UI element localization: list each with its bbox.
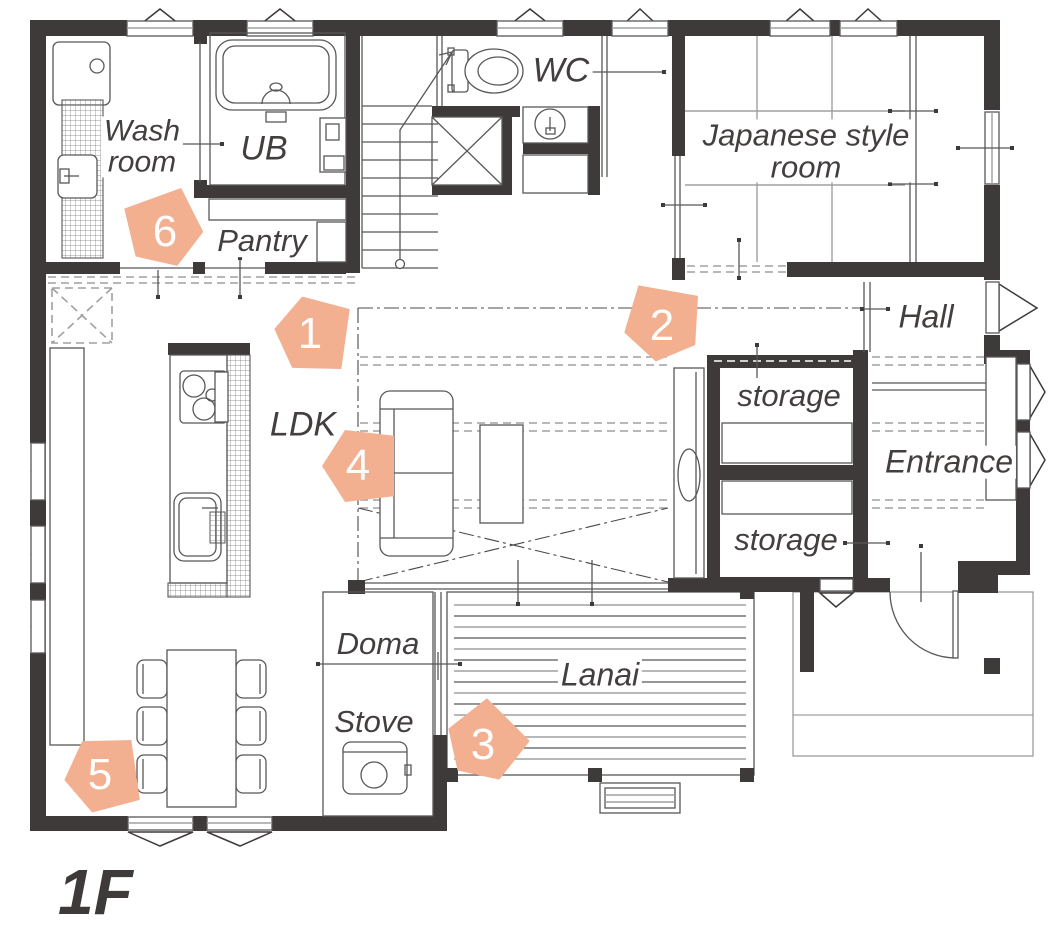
washing-machine bbox=[53, 42, 110, 105]
marker-2-number: 2 bbox=[626, 290, 698, 362]
marker-1: 1 bbox=[274, 298, 346, 370]
marker-4: 4 bbox=[322, 430, 394, 502]
deck-step bbox=[600, 783, 680, 813]
kitchen-island bbox=[168, 355, 250, 597]
bathtub bbox=[216, 40, 336, 122]
wash-room-line2: room bbox=[104, 147, 180, 178]
left-counter bbox=[50, 348, 84, 745]
wash-room-line1: Wash bbox=[104, 116, 180, 147]
japanese-room-line2: room bbox=[703, 151, 910, 183]
room-label-hall: Hall bbox=[895, 301, 956, 334]
marker-6-number: 6 bbox=[129, 196, 201, 268]
room-label-wash-room: Wash room bbox=[101, 116, 183, 177]
japanese-closet-doors bbox=[687, 262, 787, 277]
entrance-step bbox=[872, 383, 986, 390]
room-label-japanese-room: Japanese style room bbox=[700, 119, 913, 182]
marker-6: 6 bbox=[129, 196, 201, 268]
void-shaft bbox=[432, 117, 502, 185]
marker-5-number: 5 bbox=[64, 739, 136, 811]
coffee-table bbox=[480, 425, 523, 523]
casement-window-hall bbox=[986, 282, 1037, 333]
shower-unit bbox=[320, 118, 346, 172]
room-label-doma: Doma bbox=[334, 628, 423, 660]
marker-2: 2 bbox=[626, 290, 698, 362]
marker-4-number: 4 bbox=[322, 430, 394, 502]
slider-window-japanese bbox=[956, 112, 1014, 184]
room-label-lanai: Lanai bbox=[558, 659, 642, 692]
toilet bbox=[448, 48, 523, 93]
room-label-stove: Stove bbox=[331, 706, 416, 738]
awning-window-doma-side bbox=[820, 579, 853, 607]
marker-5: 5 bbox=[64, 739, 136, 811]
skylight-box bbox=[52, 288, 112, 343]
marker-1-number: 1 bbox=[274, 298, 346, 370]
japanese-room-line1: Japanese style bbox=[703, 119, 910, 151]
room-label-storage-upper: storage bbox=[734, 380, 843, 412]
storage-sliding-door bbox=[674, 368, 704, 578]
marker-3-number: 3 bbox=[447, 709, 519, 781]
room-label-storage-lower: storage bbox=[731, 524, 840, 556]
floor-title: 1F bbox=[58, 855, 133, 929]
floor-plan: Wash room UB Pantry WC Japanese style ro… bbox=[0, 0, 1063, 943]
room-label-pantry: Pantry bbox=[214, 225, 310, 257]
room-label-entrance: Entrance bbox=[882, 446, 1016, 479]
room-label-ub: UB bbox=[237, 132, 290, 167]
entrance-door bbox=[890, 591, 958, 658]
marker-3: 3 bbox=[447, 709, 519, 781]
casement-windows-left bbox=[31, 443, 45, 653]
room-label-wc: WC bbox=[530, 54, 593, 89]
dining-set bbox=[137, 650, 266, 807]
laundry-counter bbox=[58, 100, 103, 258]
staircase bbox=[362, 36, 452, 269]
wood-stove bbox=[343, 742, 411, 794]
